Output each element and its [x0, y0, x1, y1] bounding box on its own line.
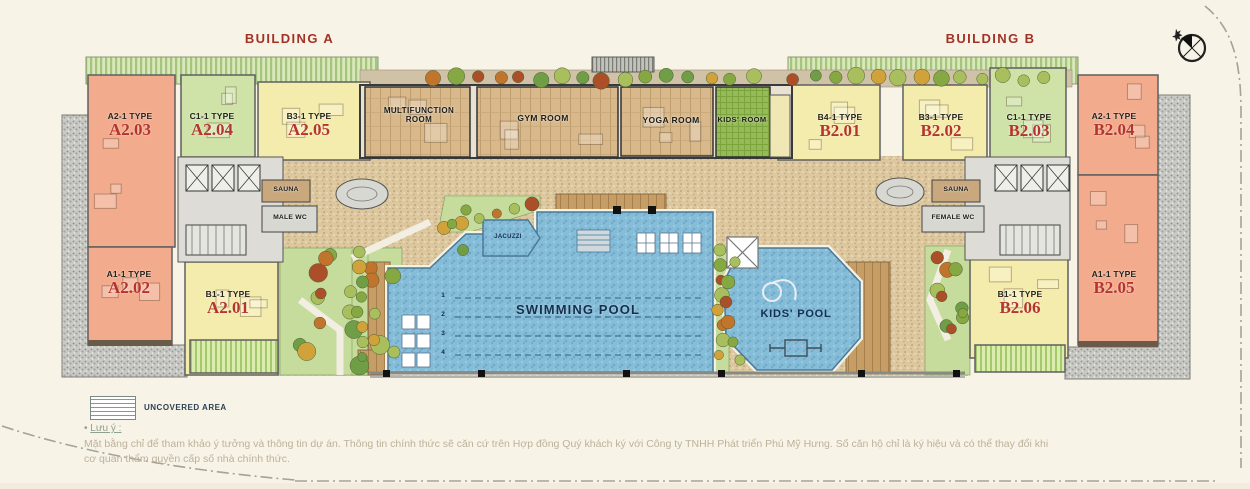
unit-a2-04: [181, 75, 255, 157]
compass-icon: [1172, 29, 1205, 61]
note-label: Lưu ý :: [90, 423, 121, 434]
sauna-room-a: [262, 180, 310, 202]
kids-pool: [724, 237, 860, 370]
rooftop-louver-icon: [592, 57, 654, 72]
jacuzzi: [483, 220, 540, 256]
amenity-rooms: [360, 85, 792, 158]
unit-b2-06-balcony: [975, 345, 1065, 372]
pool-rest-ledges: [637, 233, 701, 253]
pool-steps-icon: [577, 230, 610, 252]
note-line-2: cơ quan thẩm quyền cấp số nhà chính thức…: [84, 453, 1209, 467]
gym-room: [477, 87, 618, 157]
kids-room: [716, 87, 770, 157]
note-line-1: Mặt bằng chỉ để tham khảo ý tưởng và thô…: [84, 438, 1209, 452]
unit-a2-05: [258, 82, 370, 160]
sauna-room-b: [932, 180, 980, 202]
multifunction-room: [365, 87, 470, 157]
floor-plan-drawing: [0, 0, 1250, 489]
oval-stair-icon: [876, 178, 924, 206]
unit-b2-01: [778, 85, 880, 160]
female-wc-room: [922, 206, 984, 232]
male-wc-room: [262, 206, 317, 232]
unit-a2-01-balcony: [190, 340, 278, 373]
note-heading: • Lưu ý :: [84, 423, 121, 434]
uncovered-area-label: UNCOVERED AREA: [144, 403, 227, 412]
unit-a2-03: [88, 75, 175, 247]
note-bullet: •: [84, 423, 88, 434]
unit-b2-04: [1078, 75, 1158, 175]
floor-plan-page: BUILDING A BUILDING B A2-1 TYPEA2.03 C1-…: [0, 0, 1250, 489]
unit-b2-02: [903, 85, 987, 160]
uncovered-area-swatch-icon: [90, 396, 136, 420]
oval-stair-icon: [336, 179, 388, 209]
bottom-edge-strip: [0, 483, 1250, 489]
